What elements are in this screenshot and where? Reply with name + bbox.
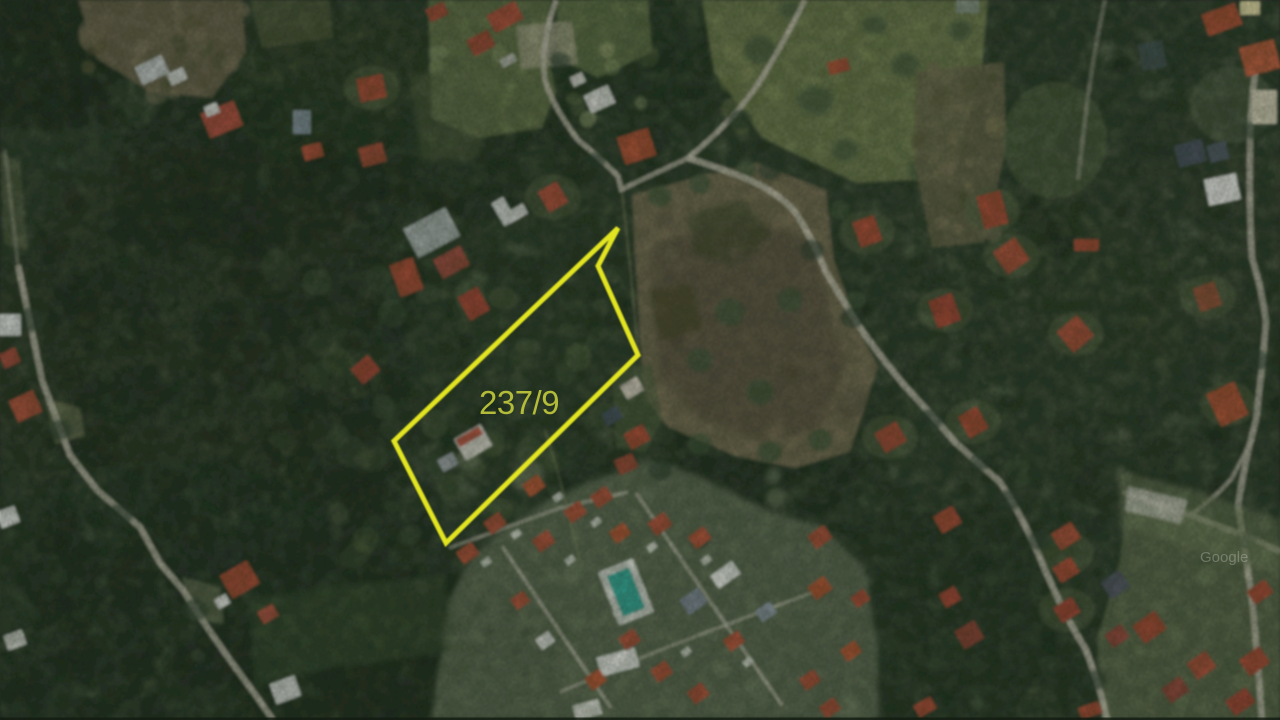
svg-text:Google: Google	[1200, 549, 1248, 566]
svg-text:237/9: 237/9	[479, 384, 559, 421]
